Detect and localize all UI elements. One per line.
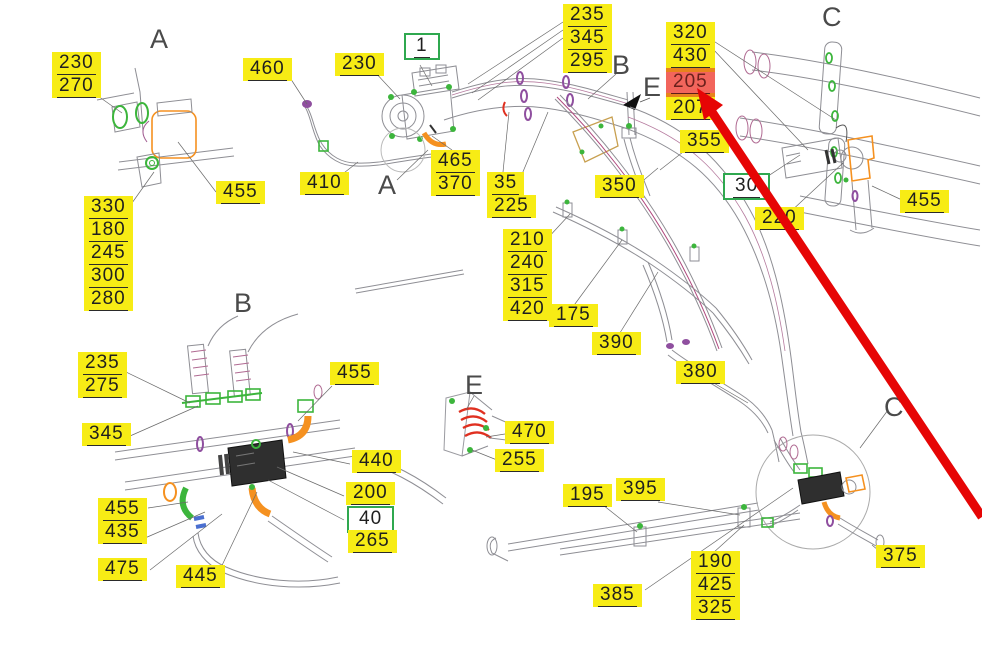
- section-letter-e: E: [643, 74, 661, 101]
- label-30: 30: [723, 173, 770, 200]
- label-395: 395: [616, 478, 665, 501]
- label-220: 220: [755, 207, 804, 230]
- label-385: 385: [593, 584, 642, 607]
- label-235-345-295: 235345295: [563, 4, 612, 73]
- label-455-a: 455: [216, 181, 265, 204]
- label-390: 390: [592, 332, 641, 355]
- label-475: 475: [98, 558, 147, 581]
- label-190-425-325: 190425325: [691, 551, 740, 620]
- label-455-435: 455435: [98, 498, 147, 544]
- section-letter-c: C: [822, 4, 842, 31]
- label-320-430-205-207: 320430205207: [666, 22, 715, 120]
- label-380: 380: [676, 361, 725, 384]
- label-330-180-245-300-280: 330180245300280: [84, 196, 133, 311]
- label-455-b1: 455: [330, 362, 379, 385]
- label-440: 440: [352, 450, 401, 473]
- label-355: 355: [680, 130, 729, 153]
- label-350: 350: [595, 175, 644, 198]
- label-265: 265: [348, 530, 397, 553]
- section-letter-a: A: [378, 172, 396, 199]
- label-40: 40: [347, 506, 394, 533]
- label-235-275: 235275: [78, 352, 127, 398]
- label-445: 445: [176, 565, 225, 588]
- label-345-b: 345: [82, 423, 131, 446]
- label-175: 175: [549, 304, 598, 327]
- label-35-225: 35225: [487, 172, 536, 218]
- label-375: 375: [876, 545, 925, 568]
- label-460: 460: [243, 58, 292, 81]
- label-470: 470: [505, 421, 554, 444]
- section-letter-b: B: [612, 52, 630, 79]
- label-230-compressor: 230: [335, 53, 384, 76]
- label-195: 195: [563, 484, 612, 507]
- labels-layer: 2302704604104553301802453002802301235345…: [0, 0, 982, 651]
- section-letter-b: B: [234, 290, 252, 317]
- section-letter-e: E: [465, 372, 483, 399]
- label-200: 200: [346, 482, 395, 505]
- diagram-page: 2302704604104553301802453002802301235345…: [0, 0, 982, 651]
- label-1: 1: [404, 33, 440, 60]
- label-230-270: 230270: [52, 52, 101, 98]
- section-letter-c: C: [884, 394, 904, 421]
- label-210-240-315-420: 210240315420: [503, 229, 552, 321]
- label-455-c: 455: [900, 190, 949, 213]
- label-465-370: 465370: [431, 150, 480, 196]
- label-410: 410: [300, 172, 349, 195]
- label-255: 255: [495, 449, 544, 472]
- section-letter-a: A: [150, 26, 168, 53]
